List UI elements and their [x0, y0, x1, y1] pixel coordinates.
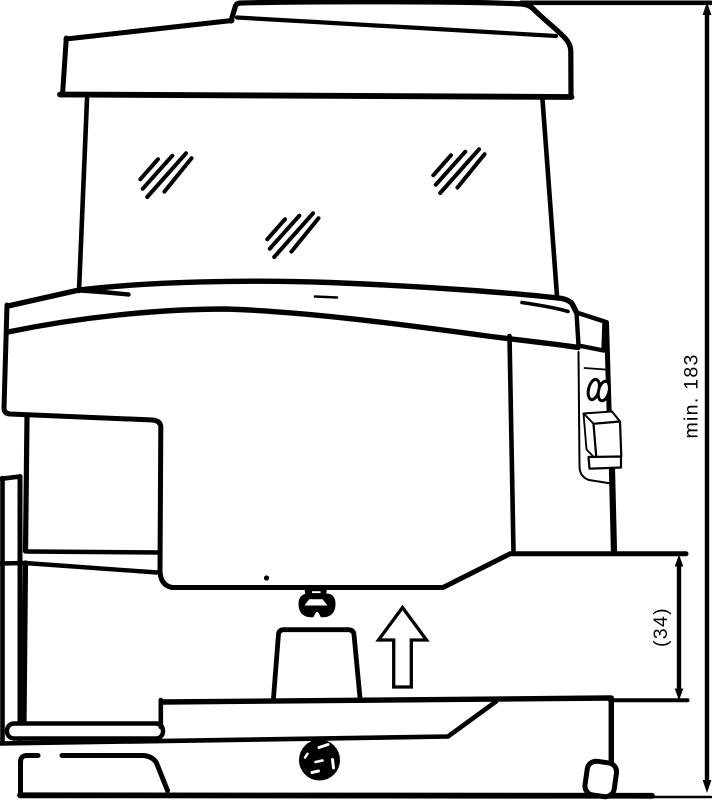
svg-text:min. 183: min. 183 — [681, 353, 703, 438]
svg-text:(34): (34) — [650, 607, 672, 647]
